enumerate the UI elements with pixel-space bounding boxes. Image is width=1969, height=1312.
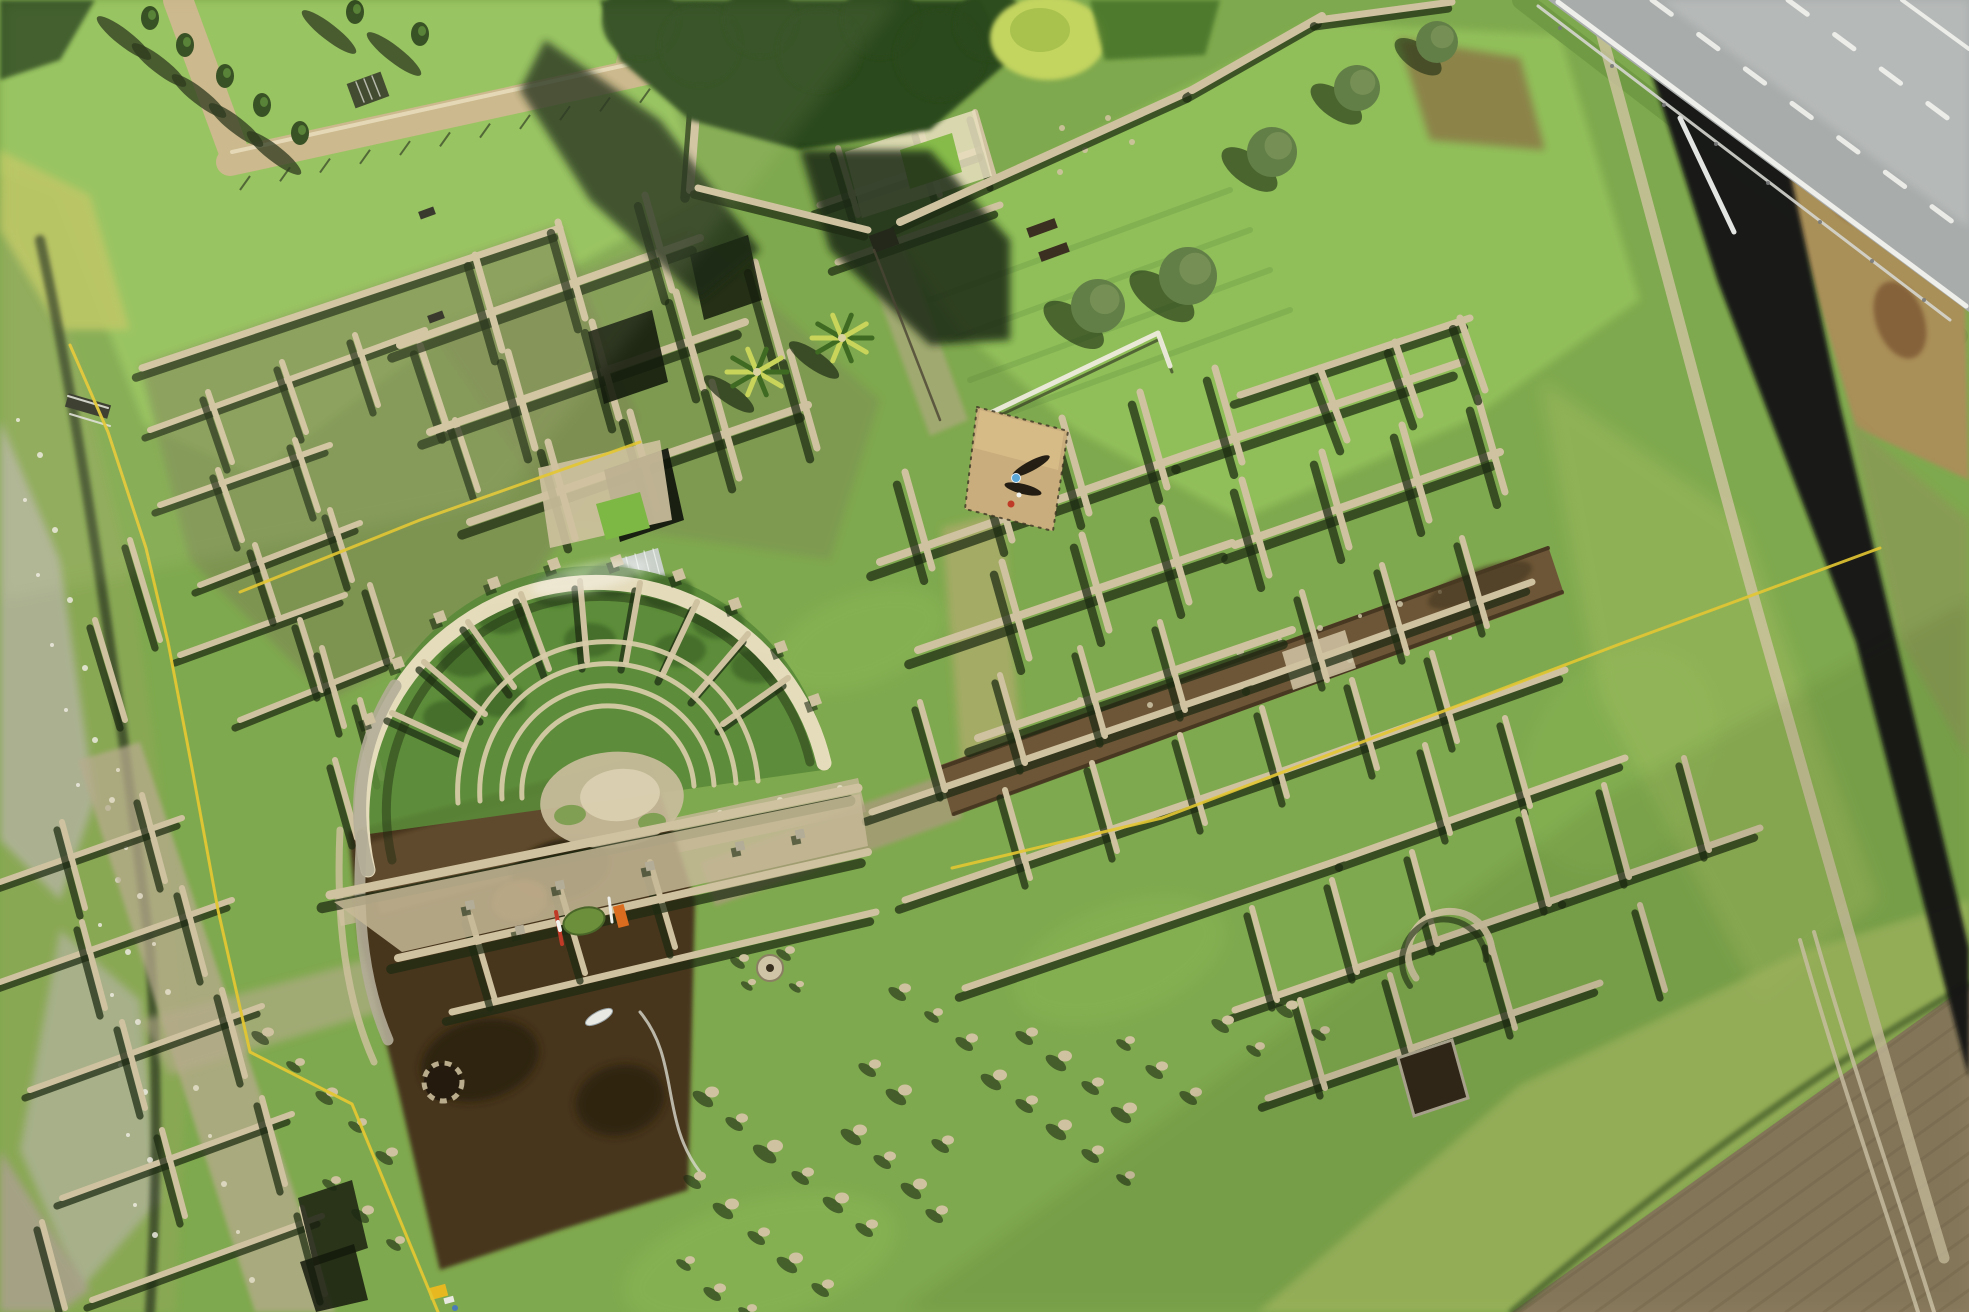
marsh-speckles [135, 1019, 141, 1025]
guardrail-posts [1766, 181, 1770, 185]
stone-block [748, 979, 756, 985]
millstone-hole [766, 964, 774, 972]
ancient-road-cobbles [1358, 614, 1362, 618]
guardrail-posts [1558, 26, 1562, 30]
stone-block [705, 1087, 719, 1098]
marsh-speckles [64, 708, 68, 712]
stone-block [465, 900, 476, 911]
stone-block [1123, 1103, 1137, 1114]
olive-highlight [1090, 284, 1120, 314]
red-pole-white-band [558, 922, 560, 930]
stone-block [933, 1008, 943, 1016]
stone-block [736, 1113, 748, 1122]
stone-block [822, 1279, 834, 1288]
stone-block [1222, 1015, 1234, 1024]
stone-block [1026, 1095, 1038, 1104]
olive-highlight [1265, 132, 1293, 160]
marsh-speckles [133, 1203, 137, 1207]
stone-block [869, 1059, 881, 1068]
street-west-cobbles [152, 942, 156, 946]
marsh-speckles [92, 737, 98, 743]
stone-block [725, 1199, 739, 1210]
street-west-cobbles [236, 1230, 240, 1234]
stone-block [555, 880, 566, 891]
palm-crown [753, 368, 761, 376]
lawn-stone-specks [1105, 115, 1111, 121]
stone-block [758, 1227, 770, 1236]
street-west-cobbles [221, 1181, 227, 1187]
street-west-cobbles [109, 797, 115, 803]
stone-block [835, 1193, 849, 1204]
stone-block [884, 1151, 896, 1160]
stone-block [1058, 1120, 1072, 1131]
street-west-cobbles [165, 989, 171, 995]
stone-block [767, 1140, 783, 1152]
guardrail-posts [1714, 142, 1718, 146]
stone-block [913, 1179, 927, 1190]
marsh-speckles [110, 993, 114, 997]
ancient-road-cobbles [1147, 702, 1153, 708]
stone-block [936, 1205, 948, 1214]
stone-block [295, 1058, 305, 1066]
stone-block [262, 1027, 274, 1036]
olive-highlight [1431, 25, 1454, 48]
stone-block [694, 1171, 706, 1180]
stone-block [747, 1304, 757, 1312]
ancient-road-cobbles [1317, 625, 1323, 631]
marsh-speckles [76, 783, 80, 787]
guardrail-posts [1922, 298, 1926, 302]
marsh-speckles [82, 665, 88, 671]
stone-block [1125, 1036, 1135, 1044]
stone-block [993, 1070, 1007, 1081]
archaeological-site-aerial-view [0, 0, 1969, 1312]
mini-excavator-blue [452, 1305, 458, 1311]
aerial-photograph [0, 0, 1969, 1312]
pit-stone-ring [424, 1063, 462, 1101]
stone-block [1026, 1027, 1038, 1036]
person-red-jacket [1008, 501, 1015, 508]
stone-block [789, 1253, 803, 1264]
lawn-stone-specks [1057, 169, 1063, 175]
stone-block [1286, 1000, 1298, 1009]
stone-block [866, 1219, 878, 1228]
stone-block [362, 1205, 374, 1214]
stone-block [853, 1125, 867, 1136]
guardrail-posts [1610, 64, 1614, 68]
bright-tree-core [1010, 8, 1070, 52]
marsh-speckles [50, 643, 54, 647]
olive-highlight [1179, 253, 1211, 285]
marsh-speckles [98, 923, 102, 927]
stone-block [898, 1085, 912, 1096]
marsh-speckles [126, 1133, 130, 1137]
ancient-road-cobbles [1397, 601, 1403, 607]
person-blue-hat [1012, 474, 1021, 483]
person-white-hat [1017, 493, 1022, 498]
street-west-cobbles [193, 1085, 199, 1091]
ancient-road-cobbles [1448, 636, 1452, 640]
marsh-speckles [67, 597, 73, 603]
lawn-stone-specks [1129, 139, 1135, 145]
stone-block [1156, 1061, 1168, 1070]
stone-block [386, 1147, 398, 1156]
stone-block [685, 1256, 695, 1264]
palm-crown [838, 334, 846, 342]
stone-block [966, 1033, 978, 1042]
stone-block [899, 983, 911, 992]
stone-block [395, 1236, 405, 1244]
stone-block [1092, 1145, 1104, 1154]
stone-block [739, 954, 749, 962]
olive-highlight [1350, 70, 1375, 95]
street-west-cobbles [208, 1134, 212, 1138]
stone-block [331, 1176, 341, 1184]
guardrail-posts [1818, 220, 1822, 224]
stone-block [942, 1135, 954, 1144]
guardrail-posts [1870, 259, 1874, 263]
canopy-right [1090, 0, 1220, 60]
guardrail-posts [1662, 103, 1666, 107]
street-west-cobbles [116, 768, 120, 772]
stone-block [515, 925, 526, 936]
marsh-speckles [152, 1232, 158, 1238]
stone-block [1058, 1051, 1072, 1062]
street-west-cobbles [249, 1277, 255, 1283]
lawn-stone-specks [1059, 125, 1065, 131]
marsh-speckles [125, 949, 131, 955]
street-west-cobbles [137, 893, 143, 899]
stone-block [795, 829, 806, 840]
stone-block [802, 1167, 814, 1176]
stone-block [796, 981, 804, 987]
stone-block [645, 861, 656, 872]
stone-block [1092, 1077, 1104, 1086]
stone-block [714, 1283, 726, 1292]
stone-block [735, 841, 746, 852]
stone-block [785, 946, 795, 954]
